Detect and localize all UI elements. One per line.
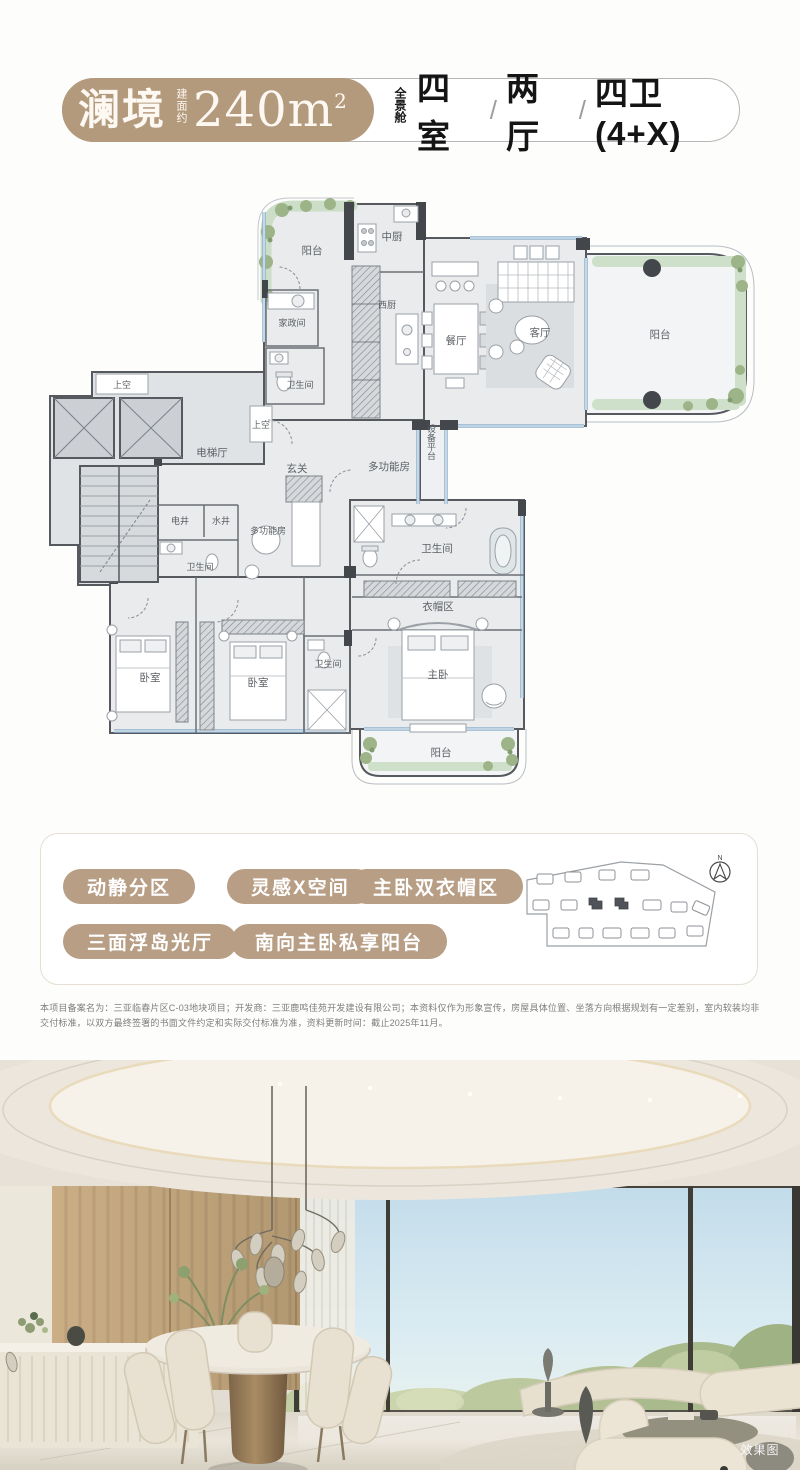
floorplan: 阳台 中厨 家政间 卫生间 西厨 餐厅 客厅 阳台 上空 上空 电梯厅 玄关 多… <box>40 185 760 805</box>
room-bedroom-b: 卧室 <box>248 676 269 689</box>
room-bath-c: 卫生间 <box>314 658 341 669</box>
room-kitchen-w: 西厨 <box>378 300 396 310</box>
header: 全景舱 四室 / 两厅 / 四卫(4+X) 澜境 建面约 240m2 <box>62 78 740 142</box>
area-value: 240m2 <box>193 86 348 134</box>
spec-separator: / <box>490 95 497 126</box>
room-cloak: 衣帽区 <box>422 600 454 613</box>
siteplan: N <box>513 852 743 972</box>
room-multiroom-a: 多功能房 <box>368 460 410 473</box>
room-balcony-s: 阳台 <box>431 746 452 759</box>
room-kitchen-cn: 中厨 <box>382 230 403 243</box>
room-bath-b: 卫生间 <box>186 561 213 572</box>
feature-tag-3: 主卧双衣帽区 <box>349 869 523 904</box>
feature-tag-4: 三面浮岛光厅 <box>63 924 237 959</box>
area-superscript: 2 <box>334 89 348 113</box>
room-living: 客厅 <box>530 326 551 339</box>
room-master: 主卧 <box>428 668 449 681</box>
room-elevator-hall: 电梯厅 <box>196 446 228 459</box>
room-bath-master: 卫生间 <box>421 542 453 555</box>
spec-separator: / <box>579 95 586 126</box>
room-bedroom-a: 卧室 <box>140 671 161 684</box>
unit-spec: 全景舱 四室 / 两厅 / 四卫(4+X) <box>392 78 740 142</box>
panorama-tag: 全景舱 <box>392 87 409 133</box>
compass-icon: N <box>710 855 730 882</box>
room-balcony-e: 阳台 <box>650 328 671 341</box>
room-void-a: 上空 <box>113 379 131 390</box>
ceiling <box>0 1060 800 1200</box>
features-box: 动静分区 灵感X空间 主卧双衣帽区 三面浮岛光厅 南向主卧私享阳台 <box>40 833 758 985</box>
spec-rooms: 四室 <box>417 62 481 158</box>
spec-baths: 四卫(4+X) <box>595 67 740 153</box>
room-balcony-nw: 阳台 <box>302 244 323 257</box>
room-equip-platform: 设备平台 <box>426 424 436 461</box>
feature-tag-5: 南向主卧私享阳台 <box>231 924 447 959</box>
area-label: 建面约 <box>175 88 186 132</box>
brand-pill: 澜境 建面约 240m2 <box>62 78 374 142</box>
room-multiroom-b: 多功能房 <box>250 525 286 536</box>
room-dining: 餐厅 <box>446 334 467 347</box>
vase-decor <box>67 1326 85 1346</box>
interior-render: 效果图 <box>0 1060 800 1470</box>
room-laundry: 家政间 <box>278 317 305 328</box>
spec-halls: 两厅 <box>506 62 570 158</box>
watermark-label: 效果图 <box>740 1442 779 1457</box>
compass-north-label: N <box>717 855 722 862</box>
flyer-page: 全景舱 四室 / 两厅 / 四卫(4+X) 澜境 建面约 240m2 <box>0 0 800 1470</box>
room-water-shaft: 水井 <box>212 515 230 526</box>
room-bath-a: 卫生间 <box>286 379 313 390</box>
feature-tag-1: 动静分区 <box>63 869 195 904</box>
room-void-b: 上空 <box>252 419 270 430</box>
disclaimer-text: 本项目备案名为：三亚临春片区C-03地块项目；开发商：三亚鹿鸣佳苑开发建设有限公… <box>40 1001 762 1031</box>
room-elec-shaft: 电井 <box>171 515 189 526</box>
room-foyer: 玄关 <box>287 462 308 475</box>
brand-name: 澜境 <box>78 89 166 131</box>
